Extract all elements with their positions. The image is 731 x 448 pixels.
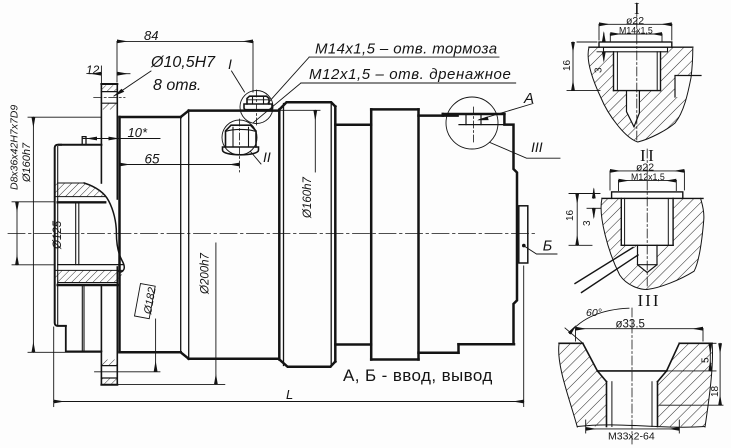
svg-text:Б: Б xyxy=(543,239,552,255)
svg-text:8 отв.: 8 отв. xyxy=(153,77,201,94)
svg-text:М14х1,5: М14х1,5 xyxy=(619,26,653,36)
svg-text:Ø125: Ø125 xyxy=(52,220,64,250)
svg-text:А: А xyxy=(523,90,534,107)
svg-text:ø33.5: ø33.5 xyxy=(616,319,645,331)
svg-text:65: 65 xyxy=(145,152,161,167)
svg-text:L: L xyxy=(286,387,293,402)
svg-text:Ø10,5Н7: Ø10,5Н7 xyxy=(150,54,216,71)
svg-text:Ø160h7: Ø160h7 xyxy=(21,142,33,183)
svg-text:Ø160h7: Ø160h7 xyxy=(302,176,314,219)
svg-text:60°: 60° xyxy=(586,307,602,319)
svg-text:М33х2-64: М33х2-64 xyxy=(608,431,655,443)
svg-text:II: II xyxy=(263,149,271,165)
svg-text:84: 84 xyxy=(144,28,158,43)
svg-text:16: 16 xyxy=(562,59,573,71)
svg-text:М12х1,5: М12х1,5 xyxy=(631,172,665,182)
svg-text:12: 12 xyxy=(86,63,100,77)
svg-text:Ø200h7: Ø200h7 xyxy=(200,252,212,295)
svg-text:Ø182: Ø182 xyxy=(142,286,159,316)
svg-text:16: 16 xyxy=(565,209,576,221)
svg-text:5: 5 xyxy=(701,357,712,363)
svg-text:D8х36х42Н7х7D9: D8х36х42Н7х7D9 xyxy=(9,105,21,190)
svg-text:3: 3 xyxy=(582,220,593,226)
svg-text:18: 18 xyxy=(710,385,721,397)
svg-text:III: III xyxy=(531,139,543,155)
svg-text:III: III xyxy=(638,291,661,310)
svg-text:А, Б - ввод, вывод: А, Б - ввод, вывод xyxy=(343,366,493,385)
svg-text:М14х1,5 – отв. тормоза: М14х1,5 – отв. тормоза xyxy=(315,41,497,58)
svg-text:10*: 10* xyxy=(128,125,148,140)
svg-text:М12х1,5 – отв. дренажное: М12х1,5 – отв. дренажное xyxy=(309,66,511,83)
svg-text:3: 3 xyxy=(594,67,605,73)
svg-text:I: I xyxy=(228,56,232,72)
